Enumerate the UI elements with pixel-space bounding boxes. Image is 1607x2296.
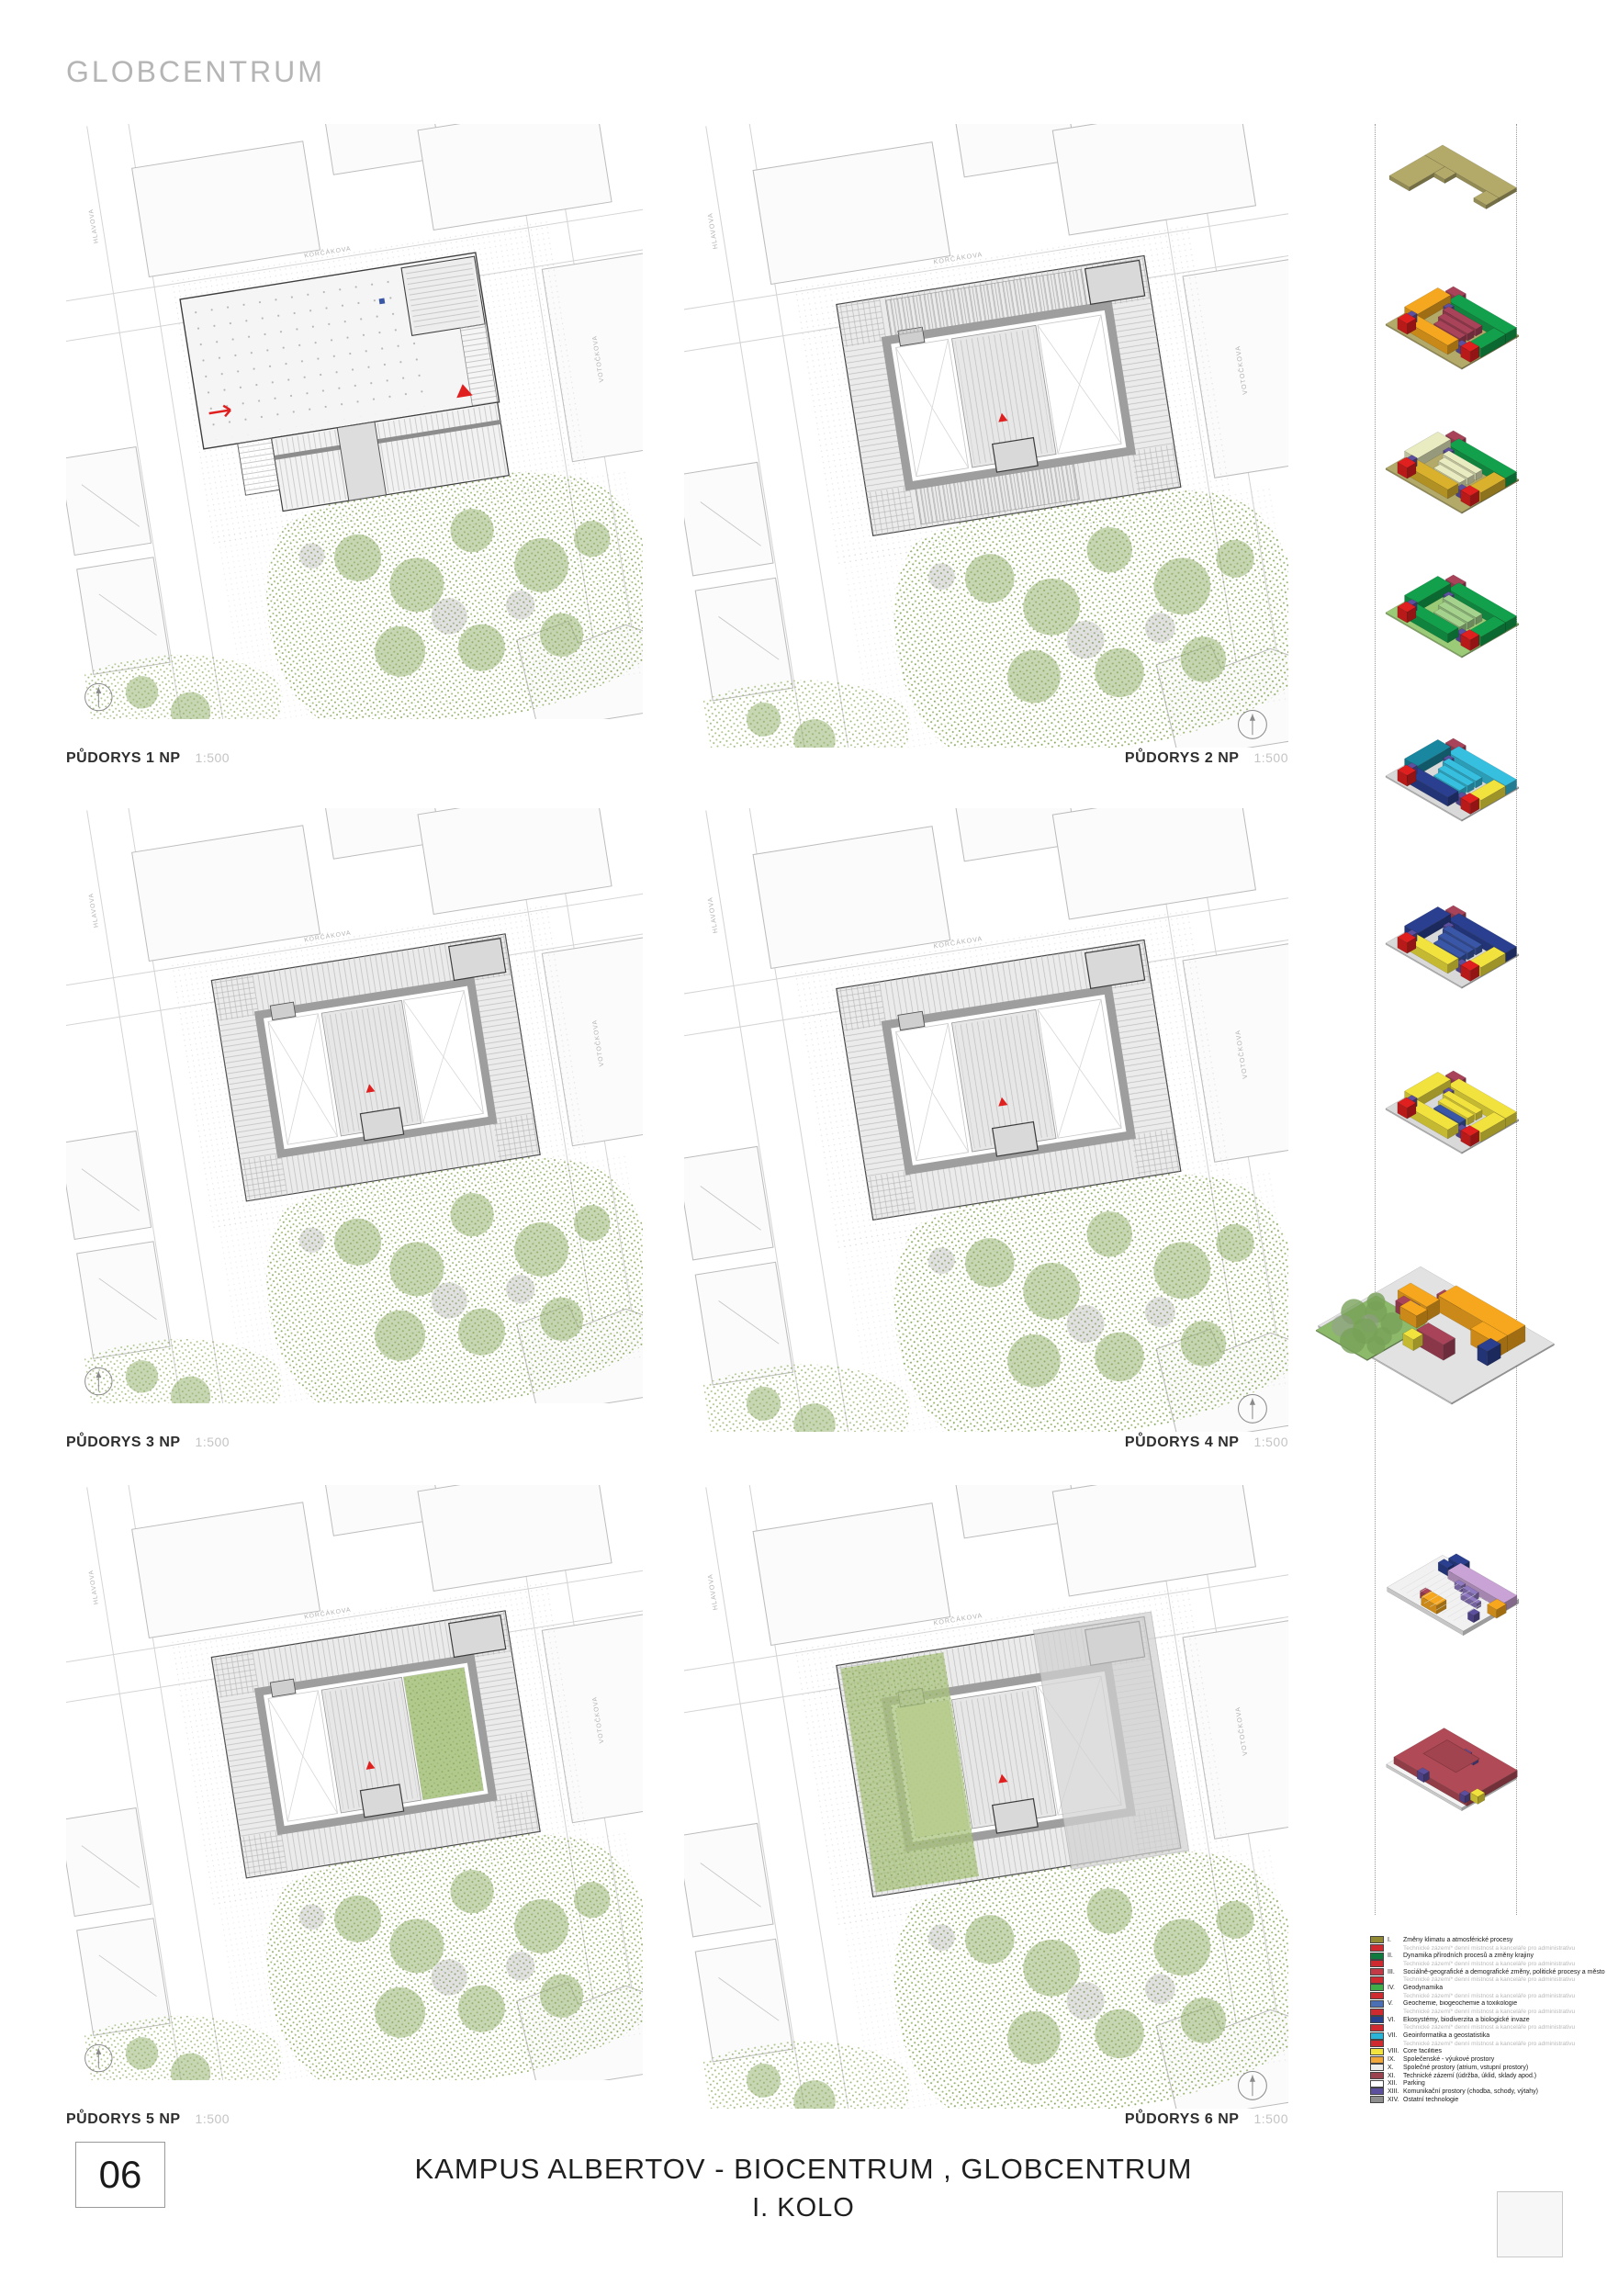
- legend-numeral: VII.: [1388, 2032, 1403, 2039]
- plan-label-4np: PŮDORYS 4 NP1:500: [684, 1435, 1288, 1451]
- plan-label-2np: PŮDORYS 2 NP1:500: [684, 750, 1288, 767]
- plan-label-5np: PŮDORYS 5 NP1:500: [66, 2111, 643, 2128]
- legend-label: Technické zázemí* denní místnost a kance…: [1403, 1976, 1575, 1983]
- legend-color-chip: [1370, 1984, 1384, 1991]
- legend-item: XIV.Ostatní technologie: [1370, 2096, 1605, 2104]
- legend-label: Core facilities: [1403, 2048, 1442, 2054]
- legend-numeral: XII.: [1388, 2080, 1403, 2087]
- legend-label: Technické zázemí* denní místnost a kance…: [1403, 1961, 1575, 1967]
- corner-box: [1497, 2191, 1563, 2257]
- legend-color-chip: [1370, 2016, 1384, 2023]
- legend-color-chip: [1370, 1976, 1384, 1984]
- footer-subtitle: I. KOLO: [0, 2193, 1607, 2223]
- plan-title: PŮDORYS 2 NP: [1125, 750, 1240, 766]
- legend-label: Technické zázemí* denní místnost a kance…: [1403, 1945, 1575, 1952]
- legend-color-chip: [1370, 2048, 1384, 2055]
- legend-color-chip: [1370, 1953, 1384, 1960]
- legend-label: Parking: [1403, 2080, 1425, 2087]
- legend-item: V.Geochemie, biogeochemie a toxikologie: [1370, 2000, 1605, 2009]
- floorplan-1np-drawing: KORČÁKOVAHLAVOVAVOTOČKOVA: [66, 124, 643, 719]
- floorplan-1np: KORČÁKOVAHLAVOVAVOTOČKOVA PŮDORYS 1 NP1:…: [66, 124, 643, 767]
- legend-numeral: IX.: [1388, 2056, 1403, 2063]
- legend-numeral: XI.: [1388, 2073, 1403, 2079]
- legend-sub-item: Technické zázemí* denní místnost a kance…: [1370, 1960, 1605, 1968]
- footer: KAMPUS ALBERTOV - BIOCENTRUM , GLOBCENTR…: [0, 2153, 1607, 2223]
- legend-item: VII.Geoinformatika a geostatistika: [1370, 2032, 1605, 2040]
- legend-color-chip: [1370, 2072, 1384, 2079]
- plan-label-1np: PŮDORYS 1 NP1:500: [66, 750, 643, 767]
- legend: I.Změny klimatu a atmosférické procesyTe…: [1370, 1936, 1605, 2103]
- floorplan-5np: KORČÁKOVAHLAVOVAVOTOČKOVA PŮDORYS 5 NP1:…: [66, 1485, 643, 2128]
- legend-item: XIII.Komunikační prostory (chodba, schod…: [1370, 2088, 1605, 2096]
- floorplan-5np-drawing: KORČÁKOVAHLAVOVAVOTOČKOVA: [66, 1485, 643, 2080]
- floorplan-4np-drawing: KORČÁKOVAHLAVOVAVOTOČKOVA: [684, 808, 1288, 1432]
- axon-level-diagram-5: [1362, 726, 1527, 871]
- legend-item: IX.Společenské - výukové prostory: [1370, 2055, 1605, 2064]
- legend-color-chip: [1370, 2056, 1384, 2064]
- floorplan-4np: KORČÁKOVAHLAVOVAVOTOČKOVA PŮDORYS 4 NP1:…: [684, 808, 1288, 1451]
- legend-label: Sociálně-geografické a demografické změn…: [1403, 1969, 1605, 1975]
- legend-color-chip: [1370, 2040, 1384, 2047]
- legend-numeral: III.: [1388, 1969, 1403, 1975]
- legend-color-chip: [1370, 1960, 1384, 1967]
- plan-scale: 1:500: [1253, 750, 1288, 765]
- axon-level-diagram-7: [1362, 1058, 1527, 1203]
- axon-level-diagram-4: [1362, 562, 1527, 707]
- legend-color-chip: [1370, 2088, 1384, 2095]
- legend-item: III.Sociálně-geografické a demografické …: [1370, 1968, 1605, 1976]
- legend-sub-item: Technické zázemí* denní místnost a kance…: [1370, 1992, 1605, 2000]
- axon-level-diagram-1: [1362, 129, 1527, 274]
- legend-label: Společné prostory (atrium, vstupní prost…: [1403, 2065, 1528, 2071]
- legend-label: Technické zázemí* denní místnost a kance…: [1403, 2041, 1575, 2047]
- legend-numeral: V.: [1388, 2000, 1403, 2007]
- legend-numeral: IV.: [1388, 1985, 1403, 1991]
- legend-label: Technické zázemí* denní místnost a kance…: [1403, 2009, 1575, 2015]
- legend-label: Změny klimatu a atmosférické procesy: [1403, 1937, 1512, 1943]
- legend-sub-item: Technické zázemí* denní místnost a kance…: [1370, 2008, 1605, 2016]
- legend-numeral: XIII.: [1388, 2088, 1403, 2095]
- legend-color-chip: [1370, 2096, 1384, 2103]
- floorplan-3np: KORČÁKOVAHLAVOVAVOTOČKOVA PŮDORYS 3 NP1:…: [66, 808, 643, 1451]
- legend-color-chip: [1370, 2064, 1384, 2071]
- legend-color-chip: [1370, 1936, 1384, 1943]
- axon-level-diagram-9: [1362, 1536, 1527, 1681]
- legend-item: VIII.Core facilities: [1370, 2048, 1605, 2056]
- floorplan-2np: KORČÁKOVAHLAVOVAVOTOČKOVA PŮDORYS 2 NP1:…: [684, 124, 1288, 767]
- footer-title: KAMPUS ALBERTOV - BIOCENTRUM , GLOBCENTR…: [0, 2153, 1607, 2186]
- legend-item: I.Změny klimatu a atmosférické procesy: [1370, 1936, 1605, 1944]
- legend-color-chip: [1370, 1992, 1384, 1999]
- legend-numeral: X.: [1388, 2065, 1403, 2071]
- legend-item: XI.Technické zázemí (údržba, úklid, skla…: [1370, 2072, 1605, 2080]
- plan-title: PŮDORYS 6 NP: [1125, 2111, 1240, 2127]
- legend-label: Geochemie, biogeochemie a toxikologie: [1403, 2000, 1517, 2007]
- legend-label: Ostatní technologie: [1403, 2097, 1458, 2103]
- legend-numeral: I.: [1388, 1937, 1403, 1943]
- legend-label: Geodynamika: [1403, 1985, 1443, 1991]
- legend-numeral: VI.: [1388, 2017, 1403, 2023]
- legend-label: Geoinformatika a geostatistika: [1403, 2032, 1489, 2039]
- legend-item: II.Dynamika přírodních procesů a změny k…: [1370, 1952, 1605, 1960]
- legend-label: Technické zázemí* denní místnost a kance…: [1403, 1993, 1575, 1999]
- plan-title: PŮDORYS 5 NP: [66, 2111, 181, 2127]
- axon-level-diagram-6: [1362, 893, 1527, 1038]
- legend-sub-item: Technické zázemí* denní místnost a kance…: [1370, 1975, 1605, 1984]
- plan-scale: 1:500: [196, 750, 230, 765]
- legend-color-chip: [1370, 2080, 1384, 2088]
- plan-title: PŮDORYS 3 NP: [66, 1435, 181, 1450]
- plan-title: PŮDORYS 4 NP: [1125, 1435, 1240, 1450]
- legend-label: Komunikační prostory (chodba, schody, vý…: [1403, 2088, 1538, 2095]
- legend-color-chip: [1370, 2000, 1384, 2008]
- legend-label: Společenské - výukové prostory: [1403, 2056, 1494, 2063]
- floorplan-6np-drawing: KORČÁKOVAHLAVOVAVOTOČKOVA: [684, 1485, 1288, 2109]
- page-title: GLOBCENTRUM: [66, 55, 325, 89]
- legend-label: Ekosystémy, biodiverzita a biologické in…: [1403, 2017, 1530, 2023]
- plan-scale: 1:500: [1253, 2111, 1288, 2126]
- presentation-board: GLOBCENTRUM KORČÁKOVAHLAVOVAVOTOČKOVA PŮ…: [0, 0, 1607, 2296]
- plan-label-3np: PŮDORYS 3 NP1:500: [66, 1435, 643, 1451]
- legend-color-chip: [1370, 2024, 1384, 2032]
- legend-sub-item: Technické zázemí* denní místnost a kance…: [1370, 1944, 1605, 1953]
- legend-label: Technické zázemí* denní místnost a kance…: [1403, 2024, 1575, 2031]
- legend-color-chip: [1370, 1944, 1384, 1952]
- legend-item: X.Společné prostory (atrium, vstupní pro…: [1370, 2064, 1605, 2072]
- plan-title: PŮDORYS 1 NP: [66, 750, 181, 766]
- legend-numeral: VIII.: [1388, 2048, 1403, 2054]
- axon-level-diagram-8: [1278, 1251, 1590, 1526]
- legend-sub-item: Technické zázemí* denní místnost a kance…: [1370, 2024, 1605, 2032]
- legend-color-chip: [1370, 2032, 1384, 2040]
- plan-scale: 1:500: [196, 1435, 230, 1449]
- legend-sub-item: Technické zázemí* denní místnost a kance…: [1370, 2040, 1605, 2048]
- legend-label: Technické zázemí (údržba, úklid, sklady …: [1403, 2073, 1536, 2079]
- floorplan-6np: KORČÁKOVAHLAVOVAVOTOČKOVA PŮDORYS 6 NP1:…: [684, 1485, 1288, 2128]
- plan-label-6np: PŮDORYS 6 NP1:500: [684, 2111, 1288, 2128]
- legend-numeral: II.: [1388, 1953, 1403, 1959]
- legend-numeral: XIV.: [1388, 2097, 1403, 2103]
- floorplan-3np-drawing: KORČÁKOVAHLAVOVAVOTOČKOVA: [66, 808, 643, 1403]
- plan-scale: 1:500: [196, 2111, 230, 2126]
- axon-level-diagram-2: [1362, 274, 1527, 419]
- legend-item: XII.Parking: [1370, 2079, 1605, 2088]
- legend-label: Dynamika přírodních procesů a změny kraj…: [1403, 1953, 1534, 1959]
- legend-item: IV.Geodynamika: [1370, 1984, 1605, 1992]
- legend-color-chip: [1370, 2009, 1384, 2016]
- floorplan-2np-drawing: KORČÁKOVAHLAVOVAVOTOČKOVA: [684, 124, 1288, 748]
- legend-color-chip: [1370, 1968, 1384, 1975]
- axon-level-diagram-10: [1362, 1710, 1527, 1855]
- axon-level-diagram-3: [1362, 418, 1527, 563]
- legend-item: VI.Ekosystémy, biodiverzita a biologické…: [1370, 2016, 1605, 2024]
